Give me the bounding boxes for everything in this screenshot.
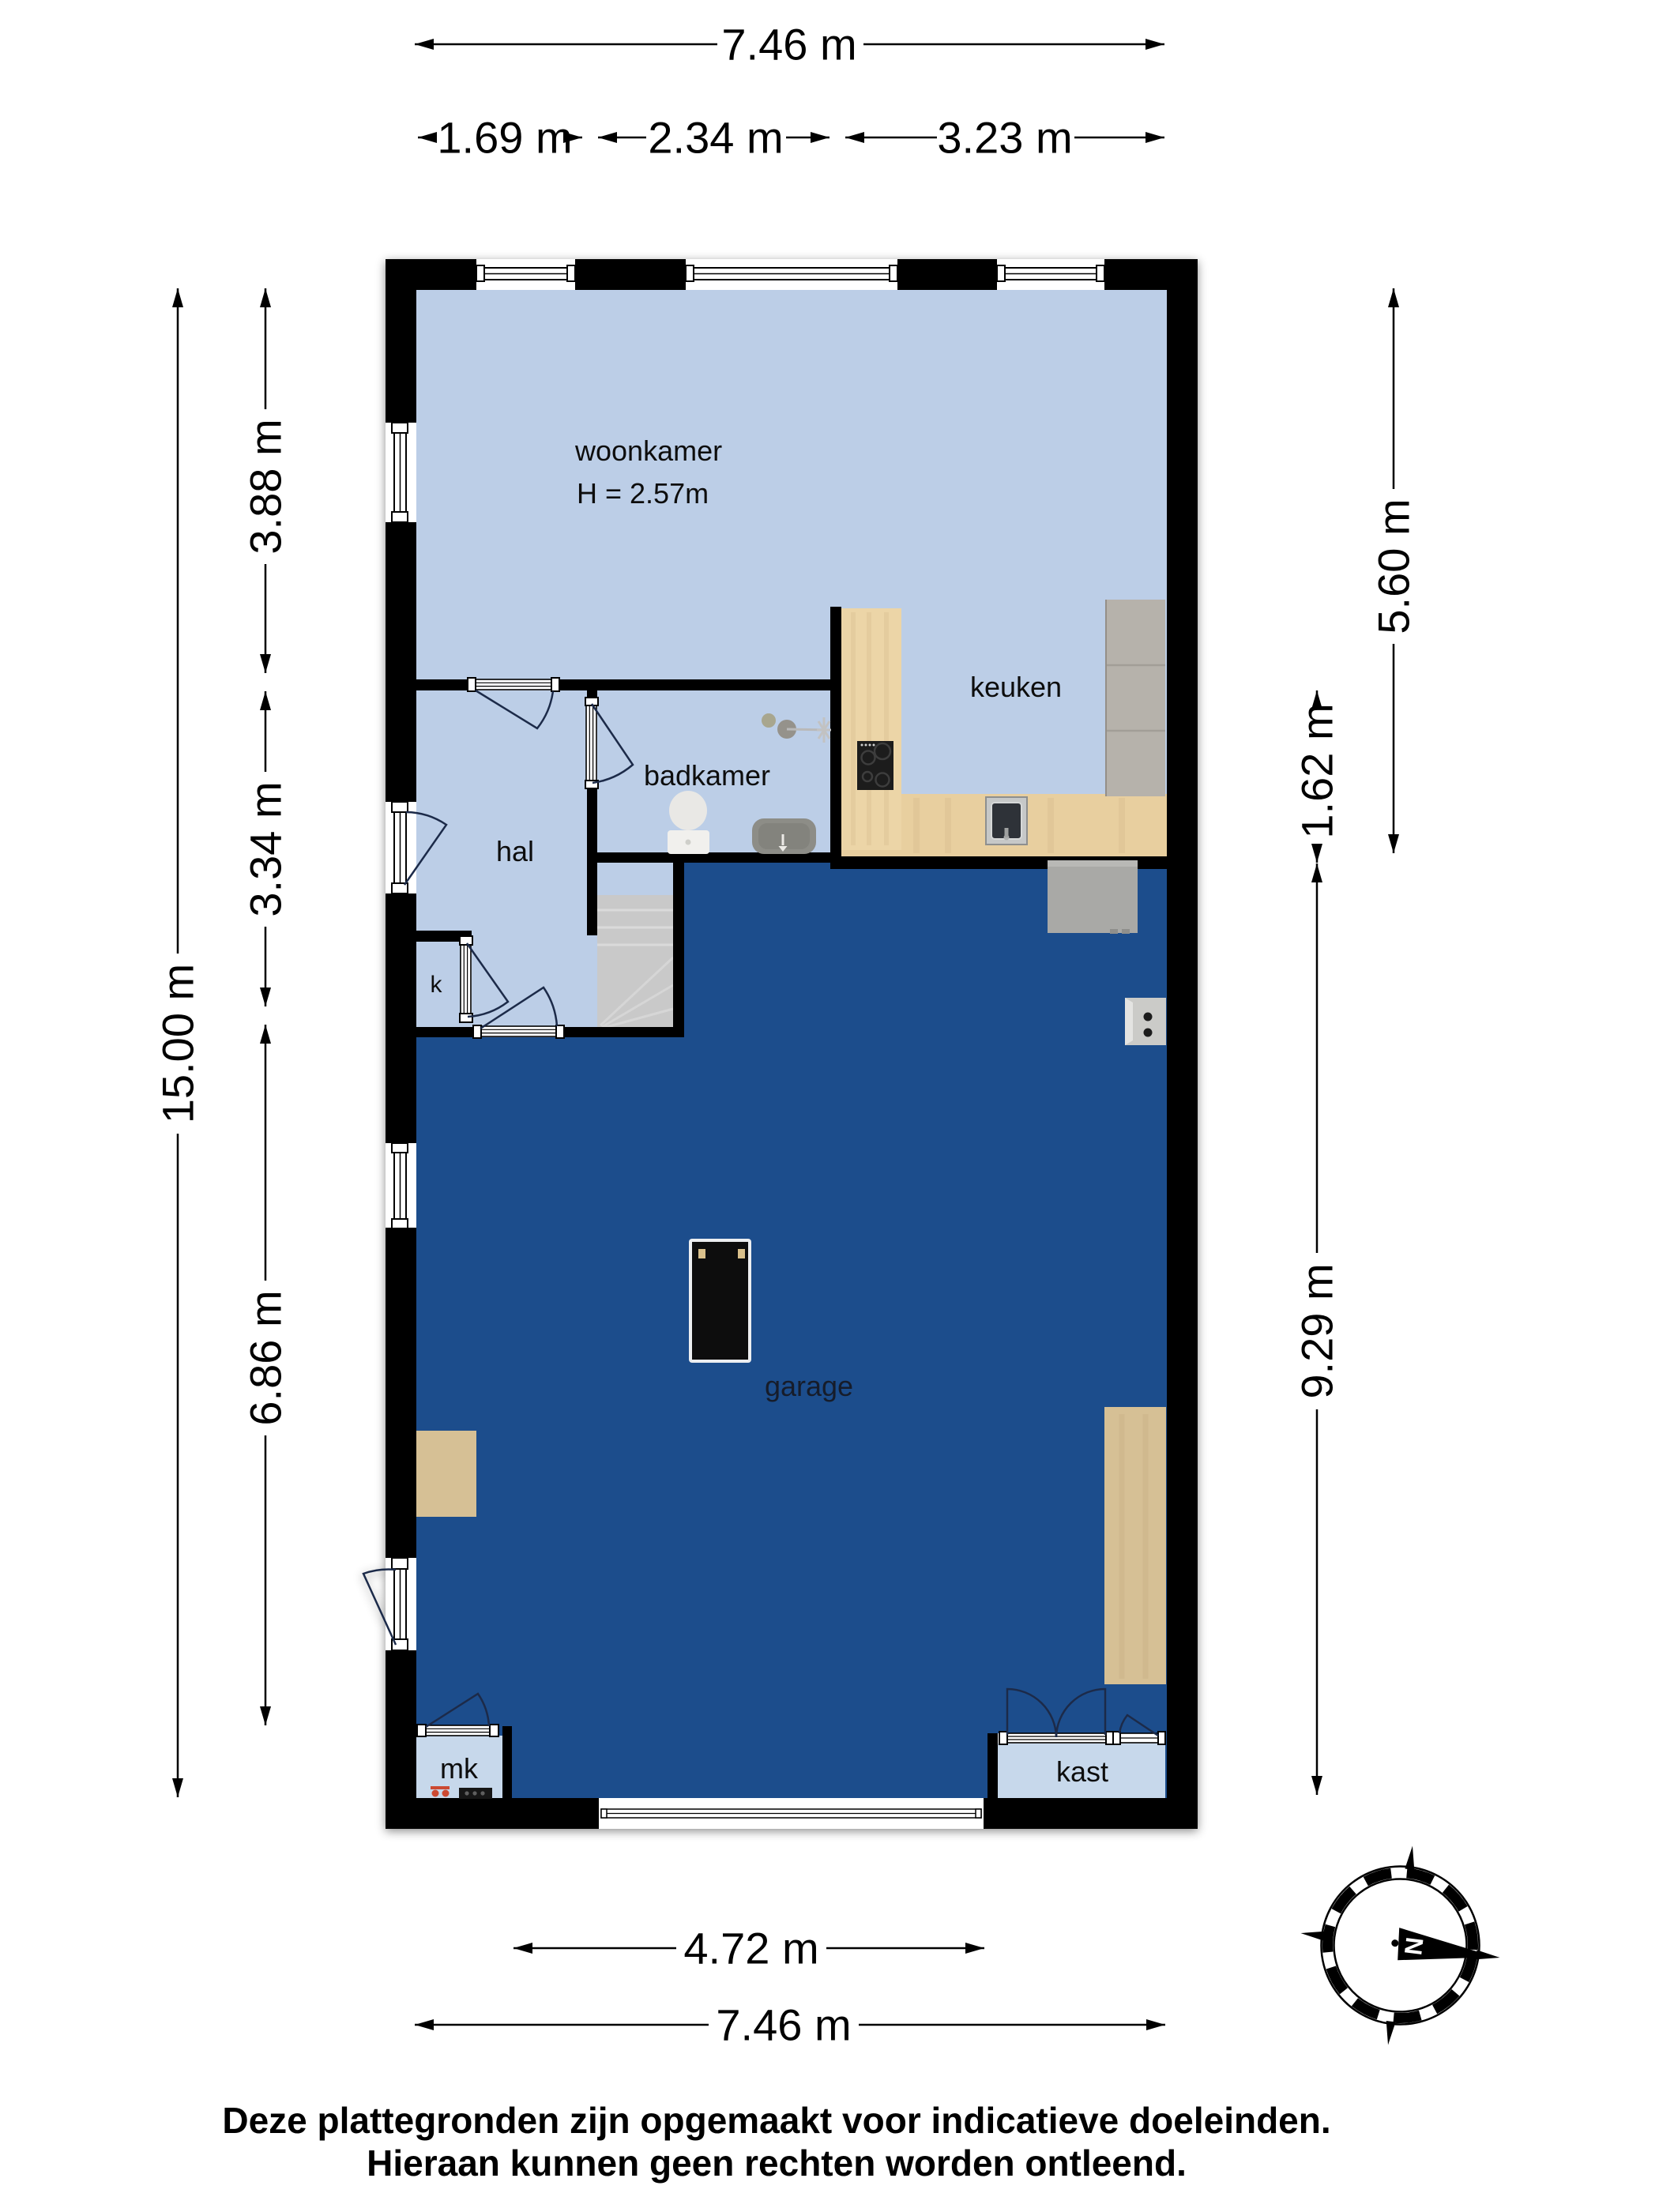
svg-text:5.60 m: 5.60 m [1369,498,1419,634]
svg-text:kast: kast [1056,1755,1108,1788]
svg-text:1.62 m: 1.62 m [1292,703,1342,838]
svg-text:3.23 m: 3.23 m [937,113,1072,163]
svg-text:woonkamer: woonkamer [574,434,722,467]
svg-text:3.34 m: 3.34 m [241,781,291,916]
svg-text:k: k [431,972,443,998]
svg-text:garage: garage [765,1370,853,1402]
svg-text:Deze plattegronden zijn opgema: Deze plattegronden zijn opgemaakt voor i… [222,2100,1330,2141]
svg-text:15.00 m: 15.00 m [153,964,203,1123]
svg-text:2.34 m: 2.34 m [648,113,783,163]
svg-text:H = 2.57m: H = 2.57m [577,477,709,510]
svg-text:7.46 m: 7.46 m [716,2000,851,2050]
svg-text:4.72 m: 4.72 m [683,1924,818,1973]
svg-text:3.88 m: 3.88 m [241,419,291,554]
svg-text:7.46 m: 7.46 m [721,20,856,70]
svg-text:hal: hal [496,835,534,867]
svg-text:keuken: keuken [970,671,1062,703]
svg-text:Hieraan kunnen geen rechten wo: Hieraan kunnen geen rechten worden ontle… [367,2142,1187,2184]
svg-text:mk: mk [440,1752,479,1785]
svg-text:9.29 m: 9.29 m [1292,1263,1342,1398]
svg-text:6.86 m: 6.86 m [241,1290,291,1425]
svg-text:1.69 m: 1.69 m [437,113,572,163]
svg-text:N: N [1399,1935,1428,1956]
svg-text:badkamer: badkamer [644,759,770,792]
